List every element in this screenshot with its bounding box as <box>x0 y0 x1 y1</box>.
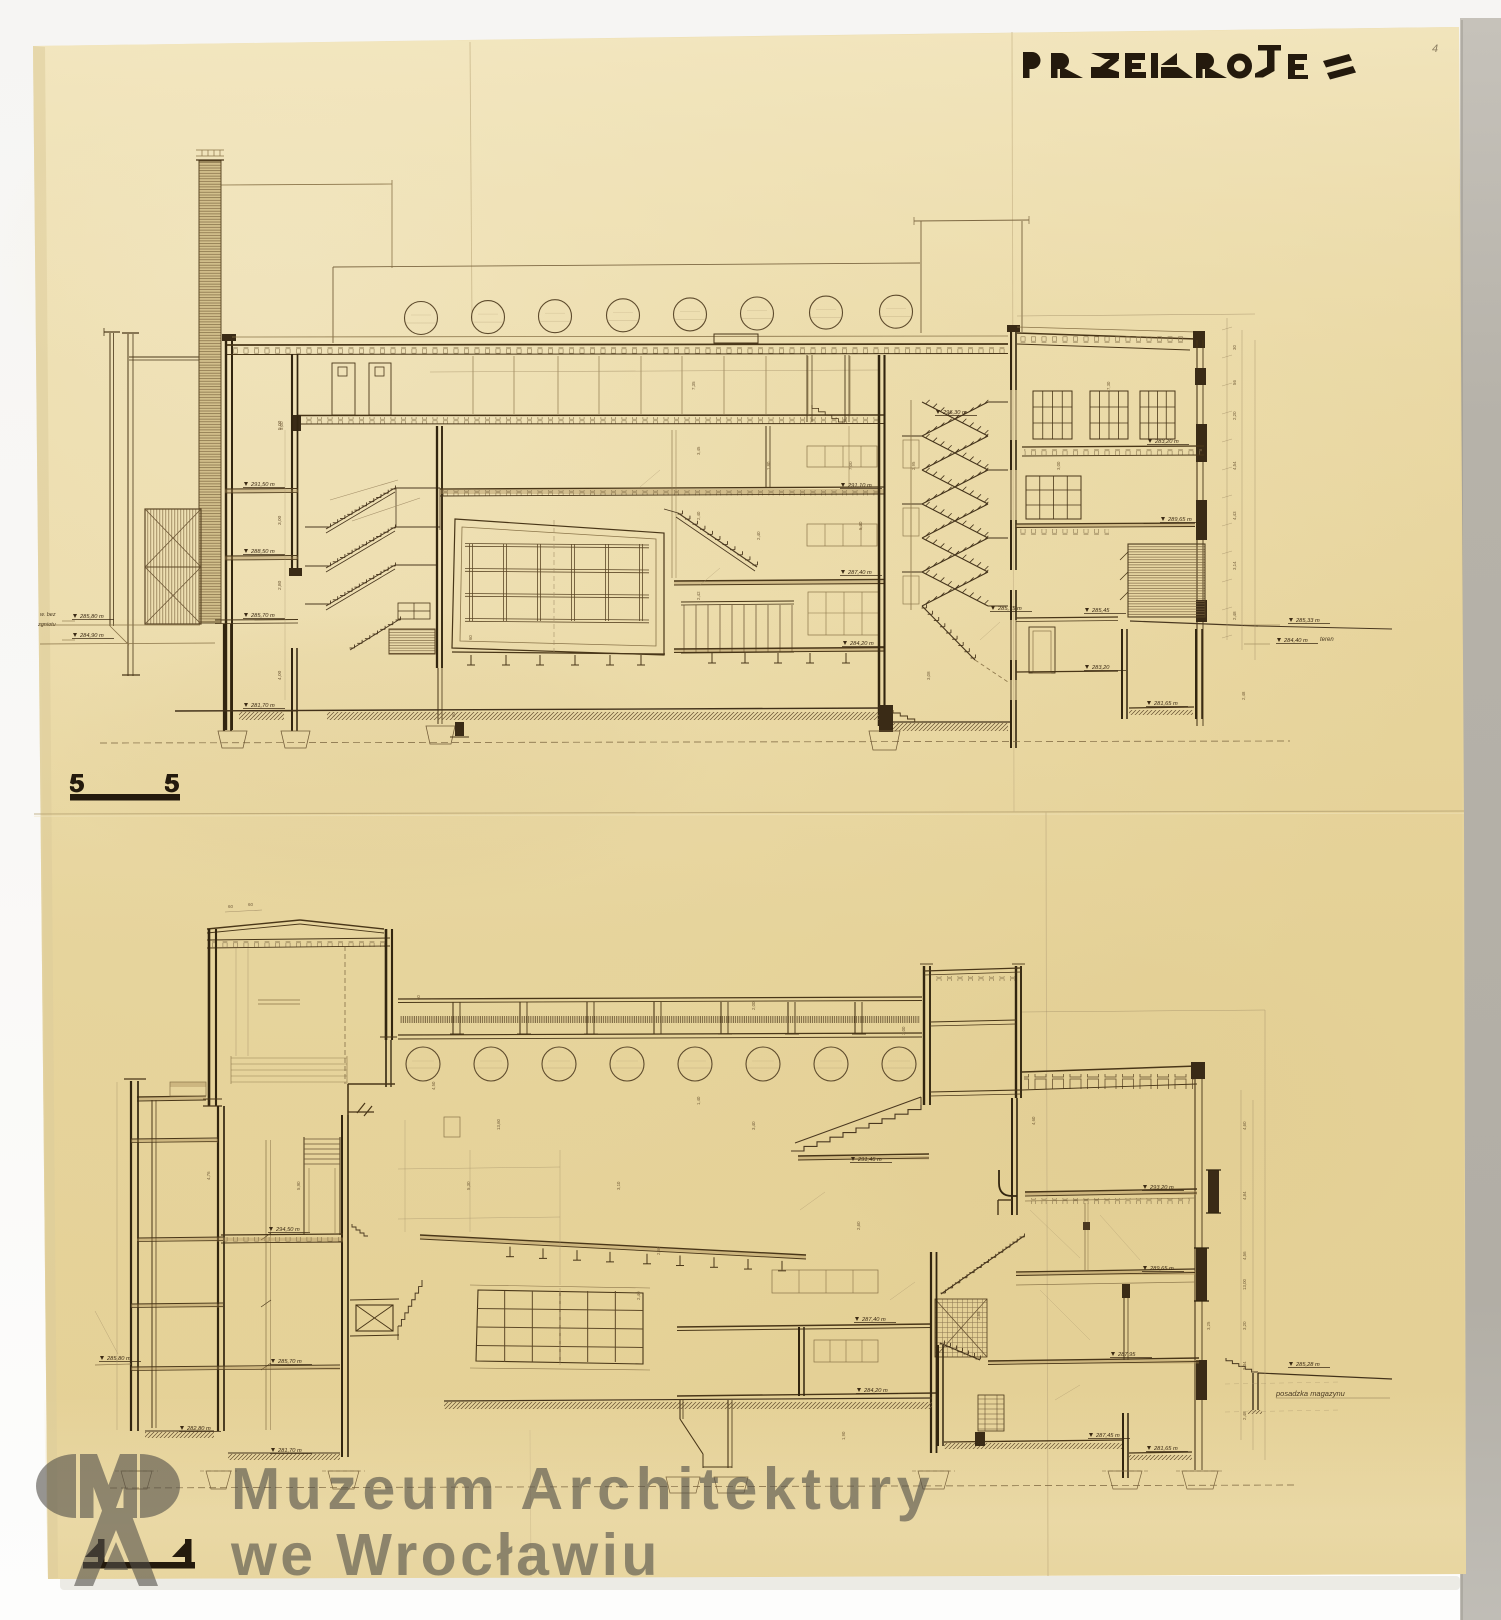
svg-text:2,20: 2,20 <box>1232 411 1237 420</box>
svg-text:283,20: 283,20 <box>1091 665 1110 671</box>
svg-text:60: 60 <box>416 995 421 1000</box>
svg-text:283,20 m: 283,20 m <box>1154 439 1179 445</box>
svg-text:291,50 m: 291,50 m <box>250 482 275 488</box>
svg-text:284,40 m: 284,40 m <box>1283 638 1308 644</box>
svg-text:3,20: 3,20 <box>1242 1321 1247 1330</box>
svg-text:5,00: 5,00 <box>279 421 284 430</box>
svg-text:3,08: 3,08 <box>926 671 931 680</box>
svg-text:285,70 m: 285,70 m <box>277 1359 302 1365</box>
svg-text:285,75 m: 285,75 m <box>997 606 1022 612</box>
svg-text:13,60: 13,60 <box>496 1118 501 1130</box>
svg-text:289,65 m: 289,65 m <box>1167 517 1192 523</box>
svg-text:288,50 m: 288,50 m <box>250 549 275 555</box>
svg-text:60: 60 <box>451 712 456 717</box>
svg-text:3,25: 3,25 <box>1206 1321 1211 1330</box>
svg-text:4,50: 4,50 <box>431 1081 436 1090</box>
svg-text:3,00: 3,00 <box>1056 461 1061 470</box>
svg-text:4,54: 4,54 <box>1232 461 1237 470</box>
svg-text:3,00: 3,00 <box>901 1026 906 1035</box>
svg-text:284,90 m: 284,90 m <box>79 633 104 639</box>
svg-text:w. bez: w. bez <box>40 612 56 618</box>
svg-text:2,42: 2,42 <box>696 591 701 600</box>
svg-text:4,84: 4,84 <box>1242 1191 1247 1200</box>
svg-text:285,28 m: 285,28 m <box>1295 1362 1320 1368</box>
svg-text:7,00: 7,00 <box>848 461 853 470</box>
svg-text:287,40 m: 287,40 m <box>847 570 872 576</box>
svg-text:287,95: 287,95 <box>1117 1352 1136 1358</box>
svg-text:287,45 m: 287,45 m <box>1095 1433 1120 1439</box>
svg-text:4,60: 4,60 <box>1242 1121 1247 1130</box>
svg-text:1,80: 1,80 <box>766 461 771 470</box>
svg-text:2,00: 2,00 <box>751 1001 756 1010</box>
svg-text:4,56: 4,56 <box>1242 1251 1247 1260</box>
svg-text:60: 60 <box>468 635 473 640</box>
svg-text:3,45: 3,45 <box>696 446 701 455</box>
svg-text:289,65 m: 289,65 m <box>1149 1266 1174 1272</box>
svg-text:285,70 m: 285,70 m <box>250 613 275 619</box>
svg-text:13,00: 13,00 <box>1242 1278 1247 1290</box>
svg-text:5,90: 5,90 <box>296 1181 301 1190</box>
svg-text:30: 30 <box>1232 345 1237 350</box>
svg-text:281,65 m: 281,65 m <box>1153 701 1178 707</box>
svg-text:2,48: 2,48 <box>1242 1411 1247 1420</box>
svg-text:7,30: 7,30 <box>1106 381 1111 390</box>
svg-text:287,40 m: 287,40 m <box>861 1317 886 1323</box>
svg-text:posadzka magazynu: posadzka magazynu <box>1275 1389 1346 1398</box>
svg-text:1,90: 1,90 <box>841 1431 846 1440</box>
svg-text:4,76: 4,76 <box>206 1171 211 1180</box>
svg-text:3,00: 3,00 <box>277 515 283 525</box>
svg-text:281,65 m: 281,65 m <box>1153 1446 1178 1452</box>
svg-text:4,00: 4,00 <box>277 670 283 680</box>
svg-text:5,30: 5,30 <box>466 1181 471 1190</box>
svg-text:4: 4 <box>1432 43 1438 55</box>
svg-text:teren: teren <box>1320 637 1334 643</box>
svg-text:284,20 m: 284,20 m <box>863 1388 888 1394</box>
svg-text:56: 56 <box>1232 380 1237 385</box>
svg-text:291,10 m: 291,10 m <box>847 483 872 489</box>
svg-text:2,60: 2,60 <box>856 1221 861 1230</box>
svg-text:285,45: 285,45 <box>1091 608 1110 614</box>
svg-text:281,70 m: 281,70 m <box>250 703 275 709</box>
svg-text:60: 60 <box>228 904 234 909</box>
svg-text:60: 60 <box>248 902 254 907</box>
svg-text:3,40: 3,40 <box>751 1121 756 1130</box>
svg-text:5,30: 5,30 <box>858 521 863 530</box>
svg-text:4,60: 4,60 <box>1031 1116 1036 1125</box>
svg-text:2,95: 2,95 <box>911 461 916 470</box>
svg-text:4,43: 4,43 <box>1232 511 1237 520</box>
svg-text:we Wrocławiu: we Wrocławiu <box>230 1522 661 1588</box>
svg-text:2,65: 2,65 <box>976 1311 981 1320</box>
svg-text:294,50 m: 294,50 m <box>275 1227 300 1233</box>
svg-text:1,40: 1,40 <box>696 1096 701 1105</box>
svg-text:285,80 m: 285,80 m <box>79 614 104 620</box>
svg-text:2,80: 2,80 <box>277 580 283 590</box>
svg-text:2,40: 2,40 <box>696 511 701 520</box>
svg-text:2,40: 2,40 <box>756 531 761 540</box>
svg-text:293,20 m: 293,20 m <box>1149 1185 1174 1191</box>
svg-text:284,20 m: 284,20 m <box>849 641 874 647</box>
svg-text:3,10: 3,10 <box>616 1181 621 1190</box>
svg-text:285,80 m: 285,80 m <box>106 1356 131 1362</box>
svg-text:291,46 m: 291,46 m <box>857 1157 882 1163</box>
svg-text:Muzeum Architektury: Muzeum Architektury <box>231 1456 935 1522</box>
svg-text:3,14: 3,14 <box>1232 561 1237 570</box>
svg-text:2,60: 2,60 <box>656 1246 661 1255</box>
svg-text:285,33 m: 285,33 m <box>1295 618 1320 624</box>
svg-text:2,34: 2,34 <box>1242 1361 1247 1370</box>
svg-text:2,48: 2,48 <box>1232 611 1237 620</box>
svg-text:296,30 m: 296,30 m <box>942 410 967 416</box>
svg-text:7,35: 7,35 <box>691 381 696 390</box>
svg-text:2,48: 2,48 <box>1241 691 1246 700</box>
svg-text:2,40: 2,40 <box>636 1291 641 1300</box>
